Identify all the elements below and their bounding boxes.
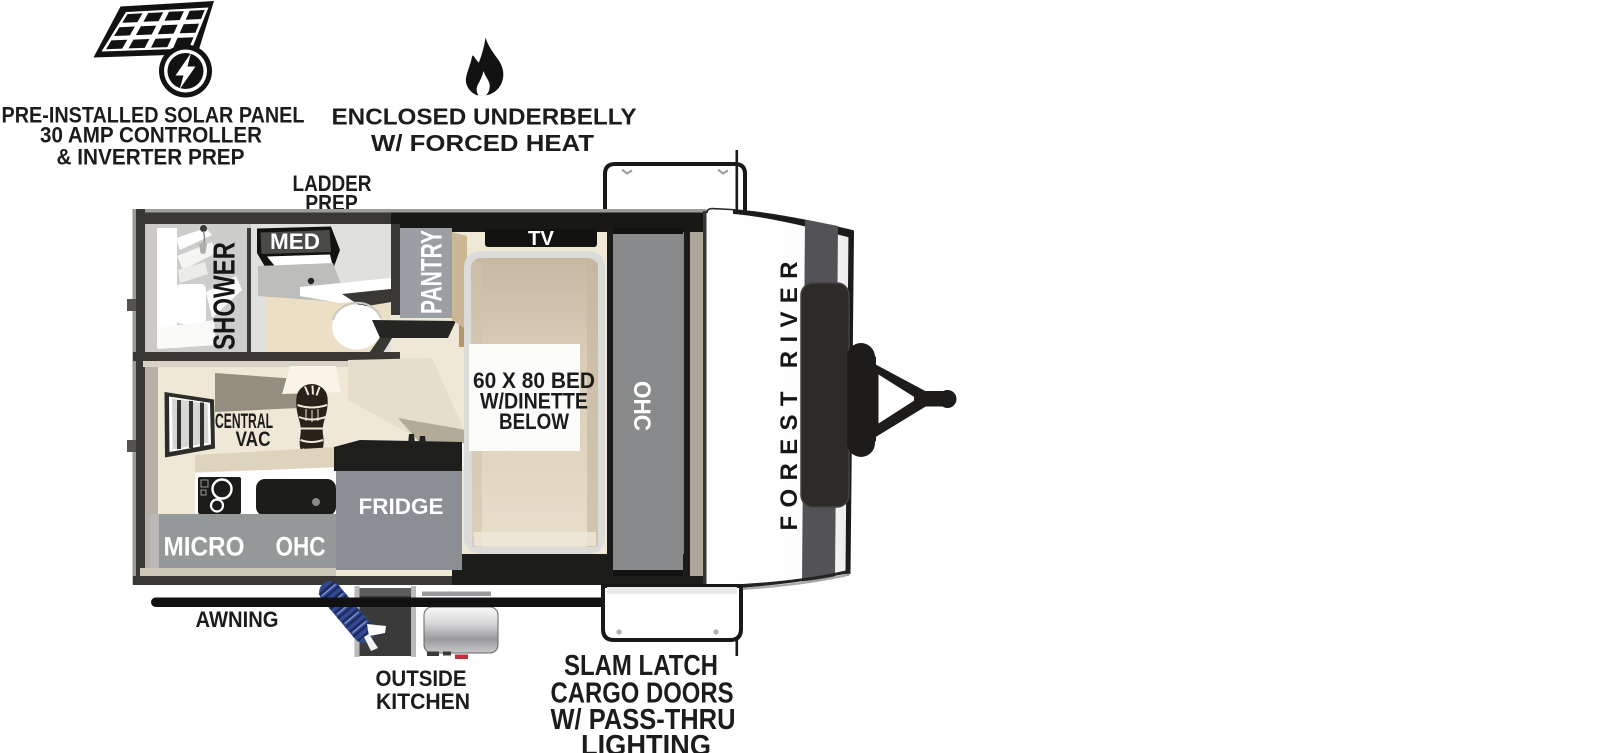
svg-text:W/ FORCED HEAT: W/ FORCED HEAT [371, 130, 594, 156]
svg-text:FOREST RIVER: FOREST RIVER [776, 262, 803, 531]
svg-text:PANTRY: PANTRY [416, 230, 449, 314]
svg-text:SHOWER: SHOWER [207, 242, 242, 350]
svg-text:AWNING: AWNING [196, 607, 279, 632]
svg-text:KITCHEN: KITCHEN [376, 689, 470, 714]
svg-text:& INVERTER PREP: & INVERTER PREP [57, 145, 245, 170]
svg-text:VAC: VAC [236, 428, 271, 451]
svg-text:MED: MED [270, 229, 320, 254]
svg-text:BELOW: BELOW [499, 409, 569, 434]
svg-text:TV: TV [528, 228, 555, 250]
svg-text:ENCLOSED UNDERBELLY: ENCLOSED UNDERBELLY [332, 104, 637, 130]
svg-text:MICRO: MICRO [164, 532, 245, 562]
svg-text:FRIDGE: FRIDGE [359, 494, 444, 519]
svg-text:OUTSIDE: OUTSIDE [376, 666, 467, 691]
svg-text:OHC: OHC [276, 532, 326, 562]
svg-text:OHC: OHC [628, 381, 655, 431]
svg-text:LIGHTING: LIGHTING [581, 730, 711, 753]
